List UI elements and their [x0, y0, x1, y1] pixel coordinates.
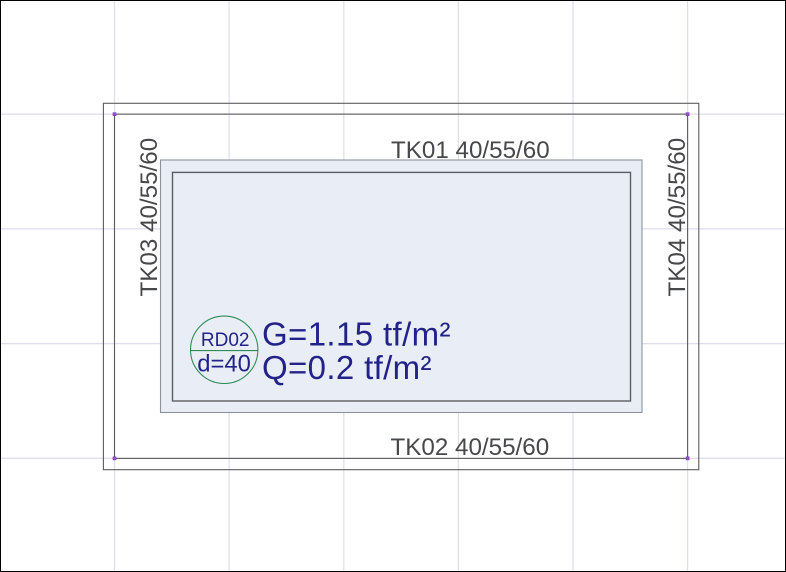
svg-text:TK01 40/55/60: TK01 40/55/60 — [391, 137, 550, 164]
svg-text:TK03 40/55/60: TK03 40/55/60 — [136, 138, 163, 297]
svg-text:d=40: d=40 — [197, 351, 251, 378]
svg-text:TK04 40/55/60: TK04 40/55/60 — [664, 138, 691, 297]
svg-text:TK02 40/55/60: TK02 40/55/60 — [391, 434, 550, 461]
svg-text:RD02: RD02 — [201, 330, 250, 351]
svg-text:G=1.15 tf/m²: G=1.15 tf/m² — [262, 316, 451, 353]
svg-text:Q=0.2 tf/m²: Q=0.2 tf/m² — [262, 349, 432, 386]
